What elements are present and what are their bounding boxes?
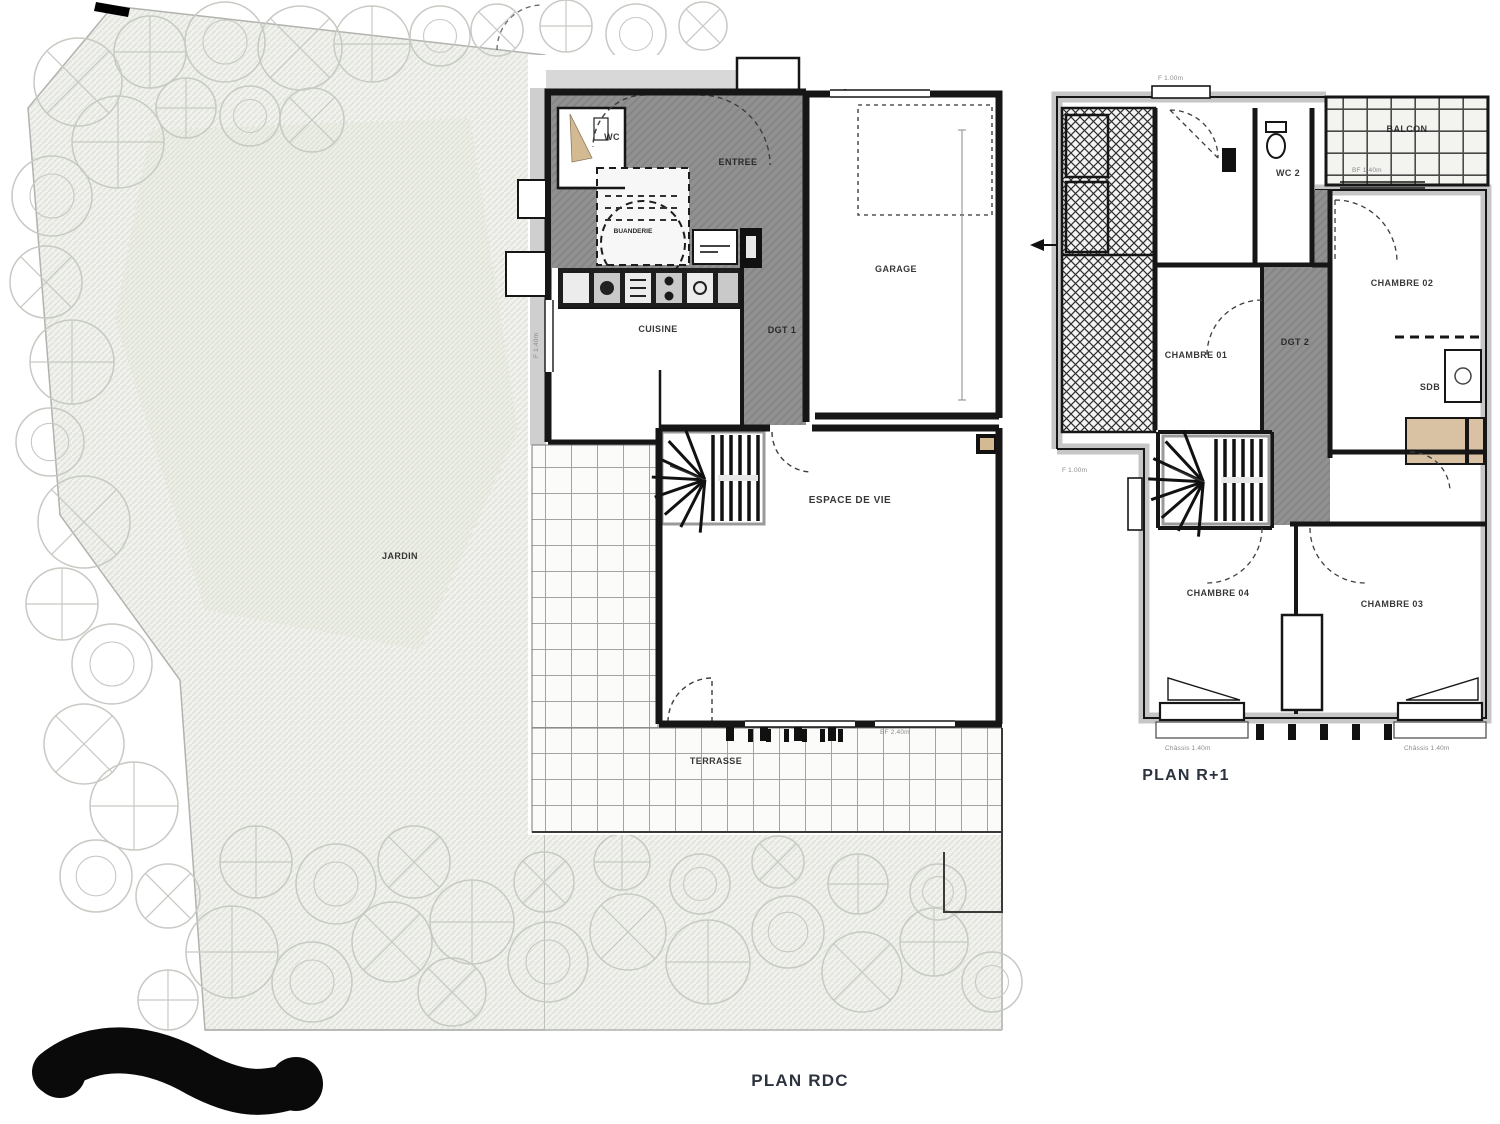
chambre01-label: CHAMBRE 01 <box>1165 350 1228 360</box>
floorplan-sheet: JARDIN WC BUANDERIE ENTREE <box>0 0 1500 1124</box>
plan-r1-title: PLAN R+1 <box>1142 767 1229 784</box>
garage-label: GARAGE <box>875 264 917 274</box>
terrace-tiles <box>532 728 1002 832</box>
buanderie-label: BUANDERIE <box>614 228 653 235</box>
chassis-right-annotation: Châssis 1.40m <box>1404 745 1450 752</box>
terrace-note <box>600 457 602 464</box>
entree-label: ENTREE <box>719 157 758 167</box>
room-garage <box>811 98 997 414</box>
roof-band <box>546 70 736 90</box>
plan-rdc-title: PLAN RDC <box>751 1071 848 1090</box>
chambre03-label: CHAMBRE 03 <box>1361 599 1424 609</box>
r1-stair-window-annotation: F 1.00m <box>1062 467 1087 474</box>
kitchen-counter <box>558 268 742 308</box>
bay-annotation: BF 2.40m <box>880 729 910 736</box>
r1-top-window-annotation: F 1.00m <box>1158 75 1183 82</box>
jardin-label: JARDIN <box>382 551 418 561</box>
staircase-rdc <box>652 430 764 532</box>
terrace-side-tiles <box>532 445 658 728</box>
balcon: BALCON BF 1.40m <box>1326 97 1488 188</box>
sdb-label: SDB <box>1420 382 1440 392</box>
closet <box>1282 615 1322 710</box>
plan-r1: BALCON BF 1.40m DGT 2 WC 2 CHAMBRE 01 CH… <box>1030 75 1490 752</box>
espace-label: ESPACE DE VIE <box>809 495 891 506</box>
window-annotation: F 1.40m <box>533 333 540 358</box>
dgt2-label: DGT 2 <box>1281 337 1310 347</box>
chambre04-label: CHAMBRE 04 <box>1187 588 1250 598</box>
wc-label: WC <box>604 132 620 142</box>
entry-porch <box>737 58 799 92</box>
cuisine-label: CUISINE <box>638 324 677 334</box>
dgt1-label: DGT 1 <box>768 325 797 335</box>
ink-blob <box>34 1046 323 1111</box>
chambre02-label: CHAMBRE 02 <box>1371 278 1434 288</box>
balcon-window-annotation: BF 1.40m <box>1352 167 1382 174</box>
hatched-zone <box>1062 108 1155 432</box>
chassis-left-annotation: Châssis 1.40m <box>1165 745 1211 752</box>
wc2-label: WC 2 <box>1276 168 1300 178</box>
balcon-label: BALCON <box>1387 124 1428 134</box>
terrasse-label: TERRASSE <box>690 756 742 766</box>
plan-rdc: WC BUANDERIE ENTREE <box>506 55 1005 912</box>
staircase-r1 <box>1148 430 1269 536</box>
